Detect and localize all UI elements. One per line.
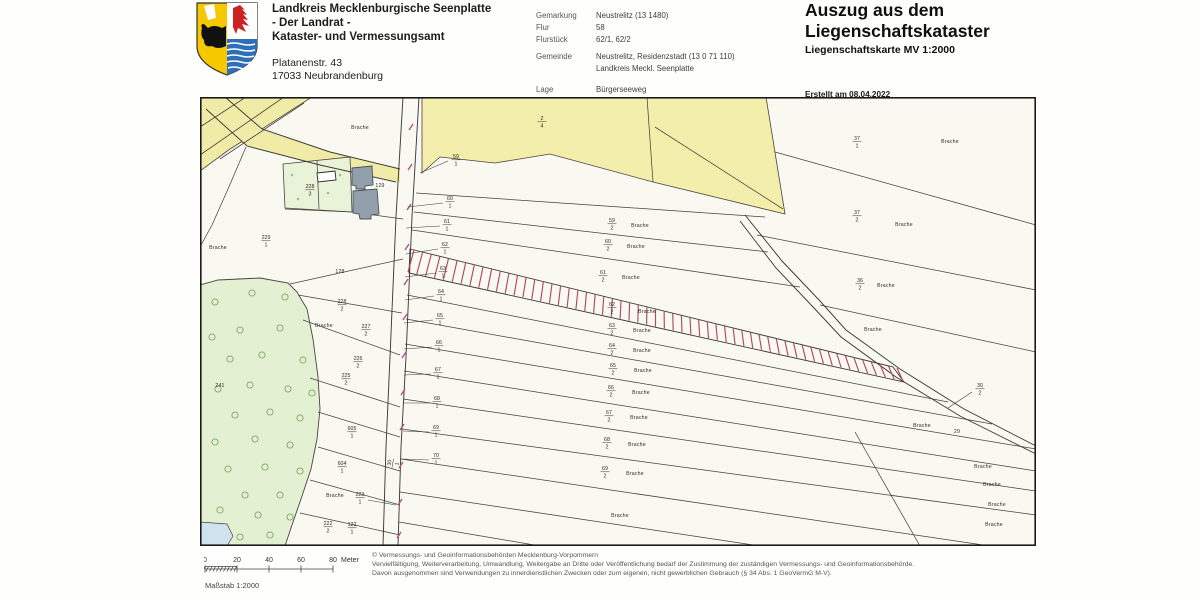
label-denominator: 2 (612, 371, 615, 377)
label-numerator: 60 (447, 196, 453, 202)
parcel-label: Brache (315, 323, 333, 329)
label-text: Brache (941, 139, 959, 145)
label-denominator: 2 (611, 310, 614, 316)
label-numerator: 68 (604, 437, 610, 443)
label-numerator: 223 (356, 492, 365, 498)
scalebar-tick-label: 60 (297, 557, 305, 564)
parcel-label: Brache (622, 275, 640, 281)
label-numerator: 226 (354, 356, 363, 362)
agency-line1: Landkreis Mecklenburgische Seenplatte (272, 2, 491, 16)
label-numerator: 67 (435, 367, 441, 373)
parcel-label: Brache (895, 222, 913, 228)
label-numerator: 228 (338, 299, 347, 305)
field-gemeinde: Gemeinde Neustrelitz, Residenzstadt (13 … (536, 52, 801, 62)
field-label: Gemeinde (536, 52, 596, 62)
label-denominator: 1 (440, 297, 443, 303)
label-denominator: 2 (345, 381, 348, 387)
label-text: Brache (864, 327, 882, 333)
agency-line3: Kataster- und Vermessungsamt (272, 30, 491, 44)
label-text: Brache (988, 502, 1006, 508)
hatch-line (629, 303, 630, 321)
label-text: Brache (209, 245, 227, 251)
label-text: Brache (627, 244, 645, 250)
label-numerator: 69 (602, 466, 608, 472)
parcel-label: Brache (983, 482, 1001, 488)
label-text: Brache (638, 309, 656, 315)
label-numerator: 64 (609, 343, 615, 349)
parcel-label: Brache (988, 502, 1006, 508)
masstab-label: Maßstab 1:2000 (205, 581, 259, 590)
label-text: Brache (985, 522, 1003, 528)
agency-line2: - Der Landrat - (272, 16, 491, 30)
label-denominator: 4 (541, 124, 544, 130)
label-text: Brache (634, 368, 652, 374)
label-denominator: 1 (341, 469, 344, 475)
label-denominator: 1 (455, 162, 458, 168)
parcel-label: Brache (941, 139, 959, 145)
title-block: Auszug aus dem Liegenschaftskataster Lie… (805, 0, 990, 56)
label-text: Brache (622, 275, 640, 281)
label-denominator: 1 (265, 243, 268, 249)
label-numerator: 65 (437, 313, 443, 319)
parcel-label: Brache (634, 368, 652, 374)
agency-address: Platanenstr. 43 17033 Neubrandenburg (272, 57, 491, 83)
label-text: Brache (633, 348, 651, 354)
parcel-label: Brache (351, 125, 369, 131)
label-denominator: 1 (435, 433, 438, 439)
label-denominator: 2 (365, 332, 368, 338)
cadastral-map: Brache24591371Brache372Brache362BracheBr… (200, 97, 1036, 546)
label-numerator: 61 (444, 219, 450, 225)
parcel-label: Brache (627, 244, 645, 250)
label-numerator: 59 (453, 154, 459, 160)
parcel-label: Brache (628, 442, 646, 448)
label-numerator: 59 (609, 218, 615, 224)
label-denominator: 1 (351, 530, 354, 536)
building-small (352, 166, 373, 189)
label-numerator: 68 (434, 396, 440, 402)
agency-street: Platanenstr. 43 (272, 57, 491, 70)
field-gemeinde-line2: Landkreis Meckl. Seenplatte (596, 64, 801, 74)
label-numerator: 227 (362, 324, 371, 330)
field-value: Neustrelitz (13 1480) (596, 11, 801, 21)
field-value: 58 (596, 23, 801, 33)
label-text: 241 (215, 383, 224, 389)
label-denominator: 1 (446, 227, 449, 233)
field-label: Flur (536, 23, 596, 33)
label-numerator: 63 (609, 323, 615, 329)
field-flurstueck: Flurstück 62/1, 62/2 (536, 35, 801, 45)
scale-bar: 020406080Meter (204, 552, 369, 580)
field-label: Flurstück (536, 35, 596, 45)
label-text: Brache (974, 464, 992, 470)
title-line2: Liegenschaftskataster (805, 21, 990, 41)
label-denominator: 1 (444, 250, 447, 256)
label-text: Brache (351, 125, 369, 131)
label-numerator: 122 (348, 522, 357, 528)
label-denominator: 2 (856, 218, 859, 224)
label-text: Brache (632, 390, 650, 396)
field-flur: Flur 58 (536, 23, 801, 33)
field-value: Neustrelitz, Residenzstadt (13 0 71 110) (596, 52, 801, 62)
label-numerator: 66 (436, 340, 442, 346)
document-page: Landkreis Mecklenburgische Seenplatte - … (0, 0, 1200, 600)
field-gemarkung: Gemarkung Neustrelitz (13 1480) (536, 11, 801, 21)
parcel-label: Brache (864, 327, 882, 333)
label-text: Brache (626, 471, 644, 477)
label-denominator: 1 (449, 204, 452, 210)
label-denominator: 2 (608, 418, 611, 424)
label-denominator: 3 (309, 192, 312, 198)
copyright-block: © Vermessungs- und Geoinformationsbehörd… (372, 551, 1012, 578)
label-denominator: 2 (607, 247, 610, 253)
parcel-label: Brache (638, 309, 656, 315)
field-label: Gemarkung (536, 11, 596, 21)
document-title: Auszug aus dem Liegenschaftskataster (805, 0, 990, 42)
label-text: Brache (611, 513, 629, 519)
parcel-label: Brache (630, 415, 648, 421)
label-numerator: 36 (857, 278, 863, 284)
label-numerator: 228 (306, 184, 315, 190)
parcel-label: Brache (633, 328, 651, 334)
label-numerator: 67 (606, 410, 612, 416)
copyright-line2: Vervielfältigung, Weiterverarbeitung, Um… (372, 560, 1012, 569)
parcel-label: 241 (215, 383, 224, 389)
label-text: Brache (628, 442, 646, 448)
label-numerator: 37 (854, 136, 860, 142)
shrub-symbol (297, 198, 300, 201)
label-numerator: 222 (324, 521, 333, 527)
label-text: 128 (335, 269, 344, 275)
parcel-label: 128 (335, 269, 344, 275)
label-numerator: 225 (342, 373, 351, 379)
label-denominator: 1 (351, 434, 354, 440)
title-line1: Auszug aus dem (805, 0, 944, 20)
parcel-label: Brache (913, 423, 931, 429)
label-denominator: 2 (604, 474, 607, 480)
parcel-label: Brache (633, 348, 651, 354)
label-numerator: 63 (440, 266, 446, 272)
label-numerator: 37 (854, 210, 860, 216)
label-numerator: 604 (338, 461, 347, 467)
label-text: Brache (633, 328, 651, 334)
parcel-label: Brache (877, 283, 895, 289)
label-denominator: 1 (435, 461, 438, 467)
label-denominator: 2 (606, 445, 609, 451)
label-numerator: 66 (608, 385, 614, 391)
shrub-symbol (339, 174, 342, 177)
label-denominator: 1 (439, 321, 442, 327)
parcel-label: 129 (375, 183, 384, 189)
copyright-line1: © Vermessungs- und Geoinformationsbehörd… (372, 551, 1012, 560)
label-text: 129 (375, 183, 384, 189)
field-value: Bürgerseeweg (596, 85, 801, 95)
label-denominator: 2 (611, 351, 614, 357)
copyright-line3: Davon ausgenommen sind Verwendungen zu i… (372, 569, 1012, 578)
label-denominator: 2 (327, 529, 330, 535)
label-numerator: 61 (600, 270, 606, 276)
document-subtitle: Liegenschaftskarte MV 1:2000 (805, 44, 990, 56)
building-outline (317, 171, 336, 182)
label-text: Brache (315, 323, 333, 329)
label-text: 29 (954, 429, 960, 435)
shrub-symbol (327, 192, 330, 195)
scalebar-unit-label: Meter (341, 557, 360, 564)
parcel-label: Brache (974, 464, 992, 470)
shrub-symbol (291, 174, 294, 177)
parcel-label: Brache (626, 471, 644, 477)
hatch-line (681, 315, 682, 332)
label-numerator: 65 (610, 363, 616, 369)
parcel-label: 29 (954, 429, 960, 435)
parcel-label: Brache (209, 245, 227, 251)
field-label: Lage (536, 85, 596, 95)
label-text: Brache (630, 415, 648, 421)
label-text: Brache (913, 423, 931, 429)
label-numerator: 30 (977, 383, 983, 389)
label-denominator: 2 (341, 307, 344, 313)
scalebar-tick-label: 80 (329, 557, 337, 564)
label-text: Brache (326, 493, 344, 499)
label-numerator: 229 (262, 235, 271, 241)
scalebar-tick-label: 20 (233, 557, 241, 564)
label-denominator: 2 (357, 364, 360, 370)
parcel-label: Brache (326, 493, 344, 499)
label-numerator: 605 (348, 426, 357, 432)
label-text: Brache (877, 283, 895, 289)
label-denominator: 2 (611, 331, 614, 337)
label-denominator: 1 (438, 348, 441, 354)
label-denominator: 2 (611, 226, 614, 232)
parcel-label: Brache (985, 522, 1003, 528)
label-numerator: 60 (605, 239, 611, 245)
label-text: Brache (631, 223, 649, 229)
scalebar-tick-label: 0 (204, 557, 207, 564)
metadata-fields: Gemarkung Neustrelitz (13 1480) Flur 58 … (536, 11, 801, 97)
scalebar-graphics (204, 566, 333, 573)
label-numerator: 62 (442, 242, 448, 248)
label-denominator: 1 (359, 500, 362, 506)
label-numerator: 69 (433, 425, 439, 431)
label-numerator: 70 (433, 453, 439, 459)
label-denominator: 2 (859, 286, 862, 292)
agency-block: Landkreis Mecklenburgische Seenplatte - … (272, 2, 491, 83)
label-text: Brache (983, 482, 1001, 488)
pond (200, 522, 233, 546)
label-numerator: 64 (438, 289, 444, 295)
parcel-label: Brache (632, 390, 650, 396)
label-denominator: 2 (602, 278, 605, 284)
field-value: 62/1, 62/2 (596, 35, 801, 45)
label-denominator: 2 (610, 393, 613, 399)
label-denominator: 1 (437, 375, 440, 381)
coat-of-arms (196, 2, 258, 76)
field-lage: Lage Bürgerseeweg (536, 85, 801, 95)
label-text: Brache (895, 222, 913, 228)
scalebar-tick-label: 40 (265, 557, 273, 564)
parcel-label: Brache (631, 223, 649, 229)
label-denominator: 1 (442, 274, 445, 280)
label-numerator: 2 (541, 116, 544, 122)
label-denominator: 2 (979, 391, 982, 397)
agency-city: 17033 Neubrandenburg (272, 70, 491, 83)
label-numerator: 62 (609, 302, 615, 308)
label-denominator: 1 (436, 404, 439, 410)
label-denominator: 1 (856, 144, 859, 150)
parcel-label: Brache (611, 513, 629, 519)
